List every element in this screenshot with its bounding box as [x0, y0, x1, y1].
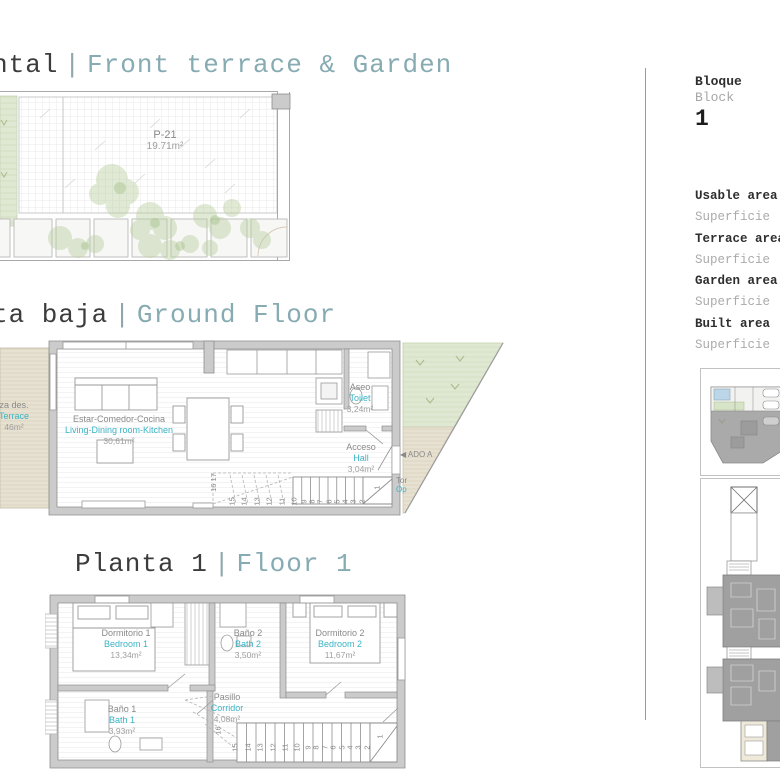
path-arrow-label: ◀ ADO A	[400, 450, 432, 459]
floor1-heading-separator: |	[208, 549, 237, 579]
ground-heading-en: Ground Floor	[137, 300, 336, 330]
garden-plan-heading: ntal|Front terrace & Garden	[0, 50, 452, 80]
coffee-table	[97, 440, 133, 463]
area-entry-garden: Garden area Superficie	[695, 271, 780, 314]
ground-floor-heading: ta baja|Ground Floor	[0, 300, 336, 330]
ground-heading-separator: |	[108, 300, 137, 330]
path-partial-es: Tor	[396, 476, 407, 485]
building-key-plan-drawing	[701, 479, 780, 765]
garden-terrace-plan: P-21 19.71m²	[0, 88, 292, 266]
balcony-left-upper	[45, 614, 57, 648]
floorplan-brochure-page: { "headings": { "garden": {"left": "ntal…	[0, 0, 780, 780]
block-info: Bloque Block 1	[695, 74, 742, 132]
balcony-left-lower	[45, 700, 57, 734]
bed-1	[73, 603, 155, 671]
floor1-plan: Dormitorio 1 Bedroom 1 13,34m² Baño 2 Ba…	[45, 588, 410, 772]
site-plan-drawing	[701, 369, 780, 473]
floor1-stair-first: 1	[376, 734, 385, 738]
path-partial-label: Tor Op	[396, 476, 407, 494]
ground-stair-first: 1	[373, 485, 382, 489]
area-entry-terrace: Terrace area Superficie	[695, 229, 780, 272]
garden-side-lawn	[0, 96, 17, 226]
area-entry-built: Built area Superficie	[695, 314, 780, 357]
garden-heading-separator: |	[58, 50, 87, 80]
block-label-es: Bloque	[695, 74, 742, 90]
ground-floor-drawing	[0, 338, 505, 538]
garden-heading-en: Front terrace & Garden	[87, 50, 452, 80]
wardrobe	[185, 603, 209, 665]
garden-wall-pier	[272, 94, 290, 109]
path-partial-en: Op	[396, 485, 407, 494]
area-summary-list: Usable area Superficie Terrace area Supe…	[695, 186, 780, 356]
side-path-wedge	[403, 427, 454, 513]
ground-floor-plan: Estar-Comedor-Cocina Living-Dining room-…	[0, 338, 505, 538]
ground-heading-es: ta baja	[0, 300, 108, 330]
terrace-area-label-es: Superficie	[695, 250, 780, 271]
side-garden-wedge	[403, 343, 503, 427]
block-label-en: Block	[695, 90, 742, 106]
ground-stair-numbers: 15141312111098765432	[228, 490, 364, 506]
ground-stair-upper: 16 17	[209, 473, 218, 492]
usable-area-label-es: Superficie	[695, 207, 780, 228]
usable-area-label-en: Usable area	[695, 186, 780, 207]
garden-area-label-en: Garden area	[695, 271, 780, 292]
paved-terrace-grid	[19, 97, 277, 213]
floor1-heading-en: Floor 1	[236, 549, 352, 579]
garden-area-label-es: Superficie	[695, 292, 780, 313]
building-key-plan-thumbnail	[700, 478, 780, 768]
floor1-stair-upper: 16	[214, 726, 223, 734]
area-entry-usable: Usable area Superficie	[695, 186, 780, 229]
garden-plan-drawing	[0, 88, 292, 266]
built-area-label-es: Superficie	[695, 335, 780, 356]
site-plan-thumbnail	[700, 368, 780, 476]
garden-heading-es: ntal	[0, 50, 58, 80]
appliance	[316, 410, 342, 432]
open-terrace	[0, 348, 49, 508]
floor1-heading-es: Planta 1	[75, 549, 208, 579]
sidebar-divider	[645, 68, 646, 720]
sofa	[75, 378, 157, 410]
floor1-heading: Planta 1|Floor 1	[75, 549, 353, 579]
built-area-label-en: Built area	[695, 314, 780, 335]
terrace-area-label-en: Terrace area	[695, 229, 780, 250]
floor1-stair-numbers: 15141312111098765432	[231, 736, 369, 752]
block-number: 1	[695, 106, 742, 132]
